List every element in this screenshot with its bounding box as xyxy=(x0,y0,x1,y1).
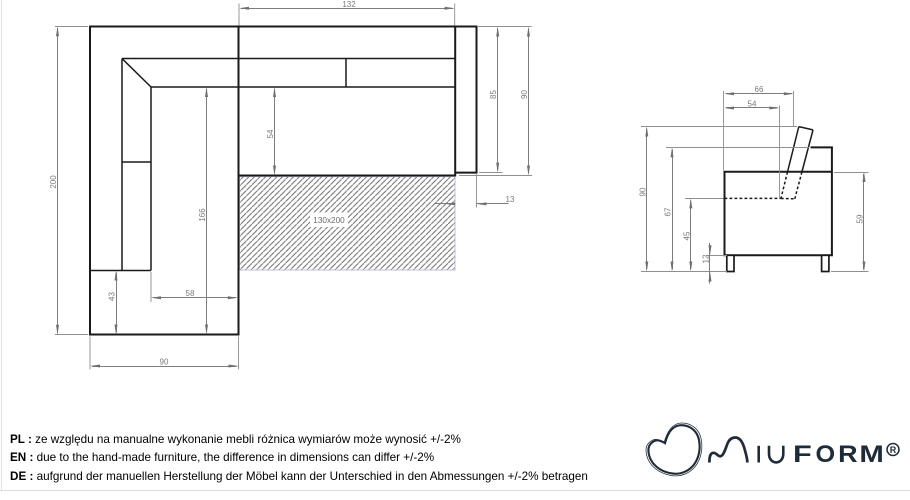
svg-text:90: 90 xyxy=(638,187,647,196)
svg-text:90: 90 xyxy=(160,357,169,366)
svg-text:66: 66 xyxy=(755,85,764,94)
svg-text:54: 54 xyxy=(748,99,757,108)
svg-text:166: 166 xyxy=(198,208,207,222)
svg-text:58: 58 xyxy=(186,289,195,298)
svg-text:132: 132 xyxy=(342,0,356,9)
svg-text:13: 13 xyxy=(506,195,515,204)
svg-text:200: 200 xyxy=(49,175,58,189)
svg-text:45: 45 xyxy=(682,231,691,240)
svg-text:F: F xyxy=(793,440,812,467)
svg-text:90: 90 xyxy=(520,90,529,99)
svg-text:85: 85 xyxy=(489,90,498,99)
svg-text:130x200: 130x200 xyxy=(313,216,345,225)
svg-text:54: 54 xyxy=(266,129,275,138)
svg-text:O: O xyxy=(815,440,835,468)
svg-text:12: 12 xyxy=(702,254,711,263)
svg-text:R: R xyxy=(838,441,858,468)
svg-text:43: 43 xyxy=(108,292,117,301)
svg-text:59: 59 xyxy=(856,214,865,223)
svg-text:67: 67 xyxy=(664,207,673,216)
svg-text:M: M xyxy=(859,440,883,467)
svg-text:R: R xyxy=(890,445,897,455)
